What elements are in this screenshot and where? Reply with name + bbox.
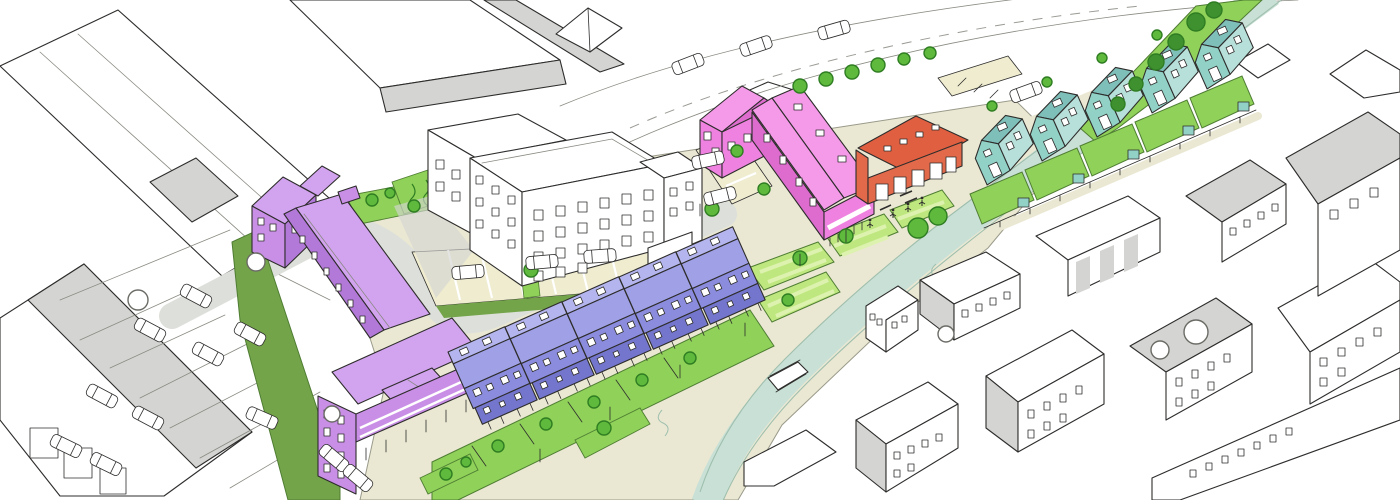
sketch-tree-outline	[938, 326, 954, 342]
promenade-tree	[440, 468, 452, 480]
street-tree	[871, 58, 885, 72]
person-head	[892, 209, 895, 212]
garden-tree	[366, 194, 378, 206]
terrace-garden-tree	[684, 352, 696, 364]
person-head	[869, 219, 872, 222]
riverbank-tree-dark	[1187, 13, 1205, 31]
park-tree	[782, 294, 794, 306]
parked-car	[451, 264, 484, 280]
riverbank-tree-dark	[1129, 77, 1143, 91]
sketch-tree-outline	[128, 290, 148, 310]
terrace-garden-tree	[540, 418, 552, 430]
sketch-canvas	[0, 0, 1400, 500]
street-tree	[819, 72, 833, 86]
court-tree	[731, 145, 743, 157]
sketch-tree-outline	[324, 406, 340, 422]
promenade-tree	[597, 421, 611, 435]
terrace-garden-tree	[492, 440, 504, 452]
masterplan-illustration	[0, 0, 1400, 500]
parked-car	[525, 254, 558, 270]
teal-back-tree	[1152, 30, 1162, 40]
person-head	[907, 203, 910, 206]
teal-back-tree	[1042, 77, 1052, 87]
plaza-tree-large	[929, 207, 947, 225]
garden-tree	[385, 188, 395, 198]
person-head	[921, 197, 924, 200]
sketch-tree-outline	[1184, 320, 1208, 344]
court-tree	[758, 183, 770, 195]
street-tree	[924, 47, 936, 59]
teal-back-tree	[987, 101, 997, 111]
street-tree	[793, 79, 807, 93]
terrace-garden-tree	[636, 374, 648, 386]
parked-car	[584, 248, 617, 263]
riverbank-tree-dark	[1206, 2, 1222, 18]
teal-back-tree	[1097, 53, 1107, 63]
street-tree	[898, 53, 910, 65]
sketch-tree-outline	[247, 253, 265, 271]
barn-gable-west	[856, 150, 868, 204]
street-tree	[845, 65, 859, 79]
riverbank-tree-dark	[1168, 34, 1184, 50]
terrace-garden-tree	[461, 457, 471, 467]
terrace-garden-tree	[588, 396, 600, 408]
plaza-tree-large	[908, 218, 928, 238]
verge-tree	[408, 200, 420, 212]
sketch-tree-outline	[1151, 341, 1169, 359]
riverbank-tree-dark	[1148, 54, 1164, 70]
riverbank-tree-dark	[1111, 97, 1125, 111]
